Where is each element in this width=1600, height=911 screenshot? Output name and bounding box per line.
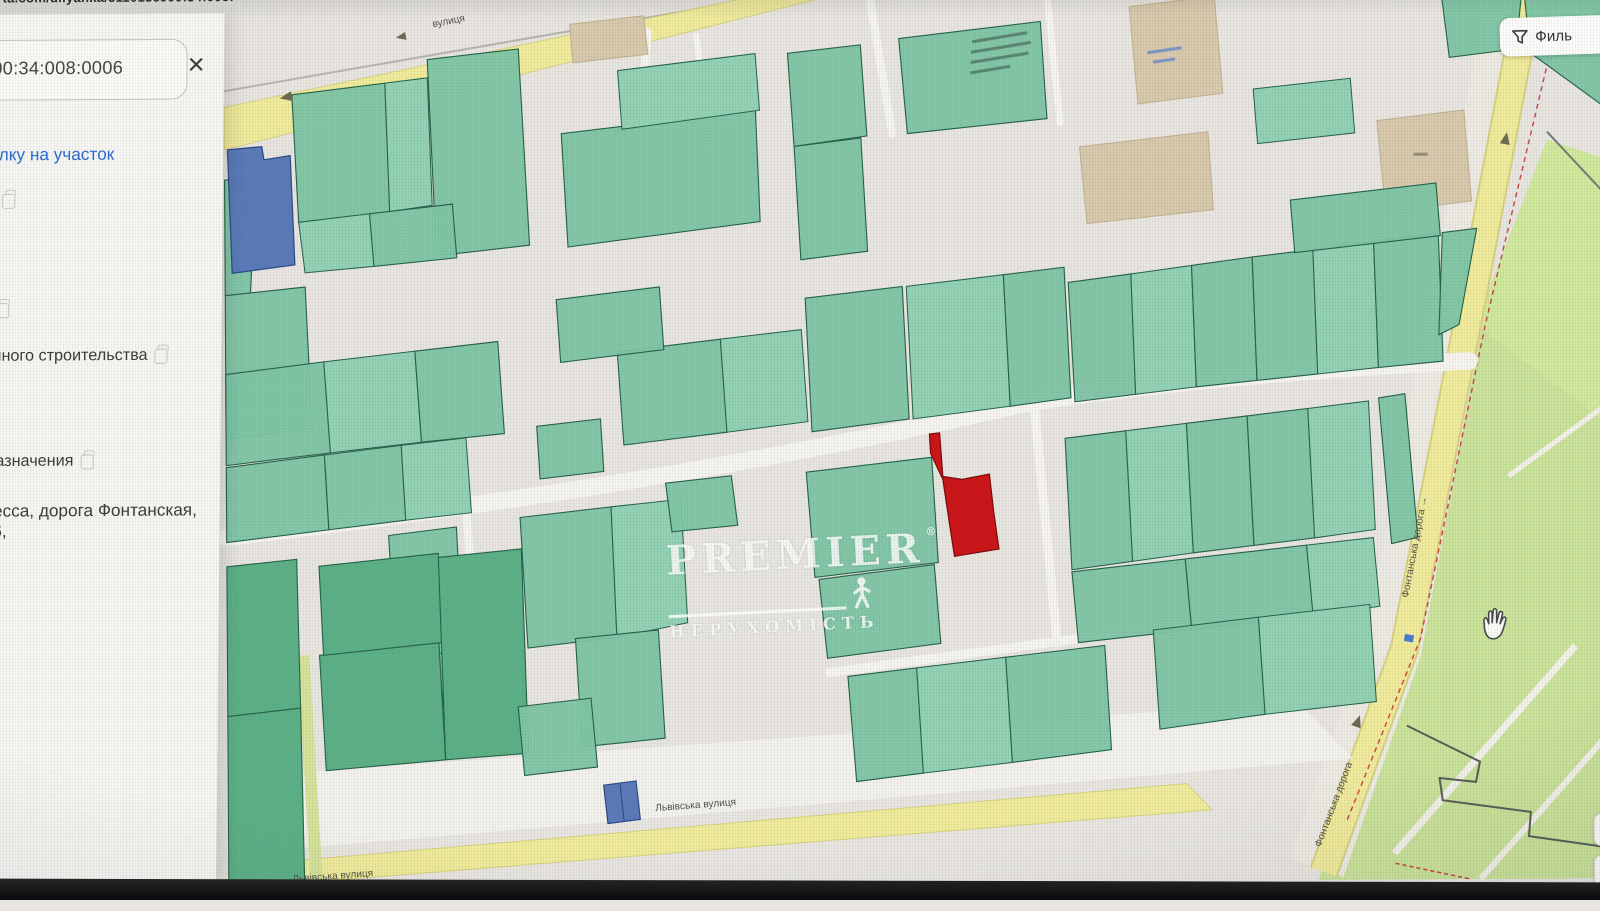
copy-icon[interactable] <box>0 303 10 318</box>
hand-cursor-icon <box>1475 606 1512 650</box>
copy-parcel-link[interactable]: ылку на участок <box>0 145 114 166</box>
walking-person-icon <box>849 576 873 609</box>
copy-icon[interactable] <box>155 348 168 363</box>
zoom-in-button[interactable]: + <box>1594 813 1600 846</box>
copy-icon[interactable] <box>80 454 93 469</box>
watermark-brand: PREMIER® <box>665 529 920 582</box>
browser-url-bar[interactable]: arta.com/dilyanka/5110136900:34:008:0006 <box>0 0 233 15</box>
cadastral-search-input[interactable]: 00:34:008:0006 <box>0 39 188 101</box>
info-row: 1 <box>0 192 15 210</box>
info-row: назначения <box>0 452 94 471</box>
address-value: десса, дорога Фонтанская, 86, <box>0 500 220 542</box>
watermark: PREMIER® НЕРУХОМІСТЬ <box>665 529 923 642</box>
registered-icon: ® <box>925 525 942 539</box>
parcel-info-sidebar: 00:34:008:0006 × ылку на участок 1 ь ачн… <box>0 12 225 886</box>
funnel-icon <box>1512 29 1529 45</box>
screen-photo: вулиця Львівська вулиця Львівська вулиця… <box>0 0 1600 910</box>
copy-icon[interactable] <box>2 193 15 208</box>
map-canvas[interactable]: вулиця Львівська вулиця Львівська вулиця… <box>0 0 1600 910</box>
filter-button[interactable]: Филь <box>1499 14 1600 57</box>
search-value: 00:34:008:0006 <box>0 57 123 79</box>
cadastral-map[interactable]: вулиця Львівська вулиця Львівська вулиця… <box>0 0 1600 910</box>
info-row: ь <box>0 301 10 319</box>
filter-label: Филь <box>1535 27 1572 45</box>
info-row: ачного строительства <box>0 347 168 366</box>
close-icon[interactable]: × <box>187 51 204 80</box>
info-value: назначения <box>0 452 74 471</box>
info-row-address: десса, дорога Фонтанская, 86, <box>0 500 220 542</box>
info-value: ачного строительства <box>0 347 148 366</box>
parcel-blue <box>227 146 295 273</box>
url-text: arta.com/dilyanka/5110136900:34:008:0006 <box>0 0 233 6</box>
